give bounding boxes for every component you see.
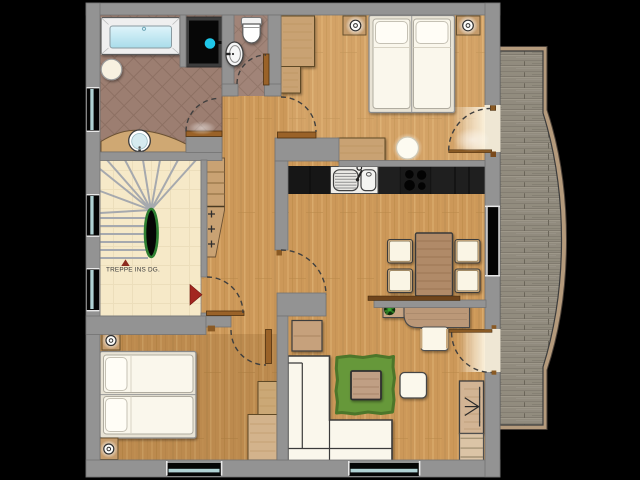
- svg-text:TREPPE INS DG.: TREPPE INS DG.: [106, 267, 160, 274]
